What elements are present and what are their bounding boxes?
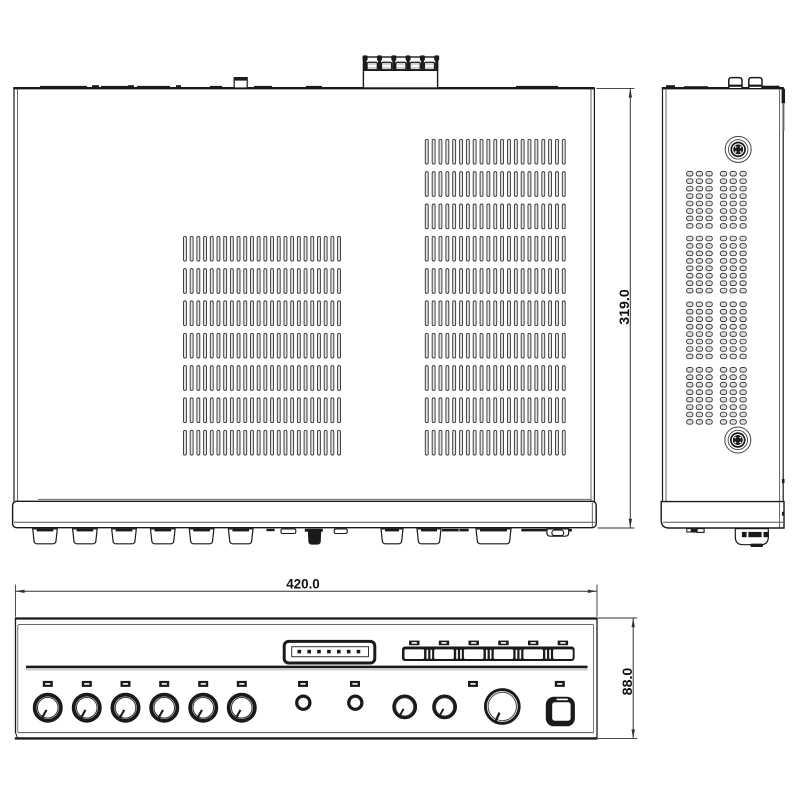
- svg-text:88.0: 88.0: [620, 668, 636, 696]
- svg-text:420.0: 420.0: [286, 577, 320, 592]
- svg-text:319.0: 319.0: [617, 289, 633, 325]
